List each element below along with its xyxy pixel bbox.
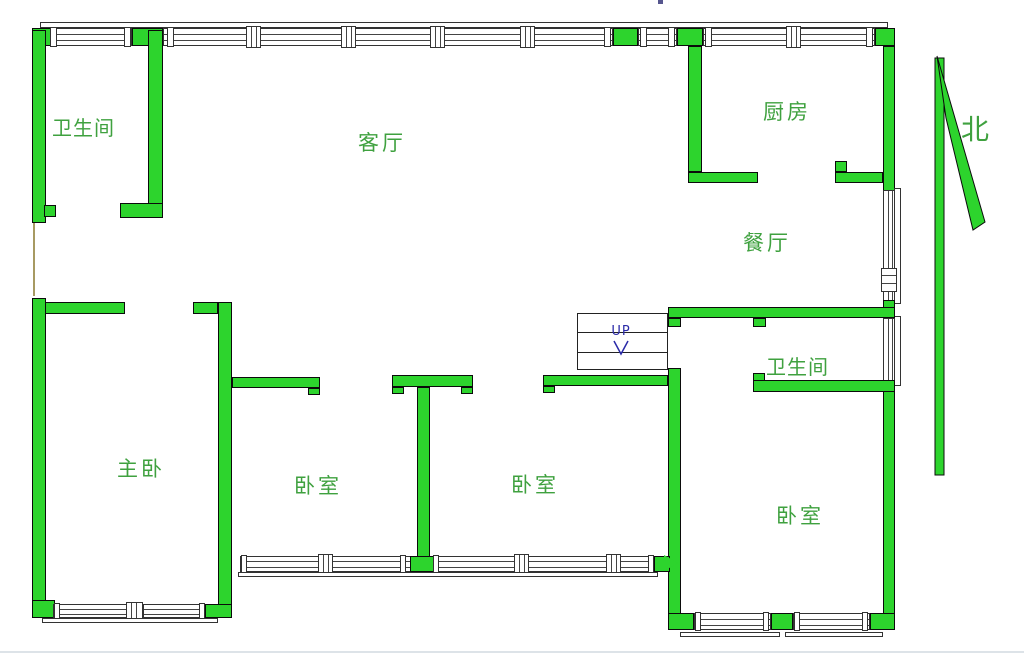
wall	[543, 375, 668, 386]
window-frame-tick	[50, 27, 57, 47]
wall-door-jamb	[668, 318, 681, 327]
window-frame-tick	[668, 27, 675, 47]
window-frame-tick	[124, 27, 131, 47]
window-frame-tick	[763, 612, 769, 631]
wall	[677, 28, 703, 46]
window	[793, 613, 870, 630]
window	[432, 556, 658, 572]
wall	[688, 172, 758, 183]
window-mullion	[786, 26, 801, 48]
window-frame-tick	[54, 603, 60, 619]
wall-door-jamb	[392, 387, 404, 394]
wall	[32, 30, 46, 223]
window-frame-tick	[648, 555, 654, 573]
window-frame-tick	[199, 603, 205, 619]
wall	[883, 382, 895, 615]
wall-door-jamb	[44, 205, 56, 217]
room-label-bedroom-2: 卧室	[511, 469, 559, 499]
wall-door-jamb	[461, 387, 473, 394]
window-frame-tick	[167, 27, 174, 47]
sill-line	[238, 572, 658, 577]
wall-door-jamb	[835, 161, 847, 172]
page-divider-line	[0, 651, 1024, 653]
window	[143, 604, 207, 618]
room-label-kitchen: 厨房	[763, 96, 811, 126]
window	[50, 28, 132, 46]
room-label-dining-room: 餐厅	[743, 227, 791, 257]
window-frame-tick	[695, 612, 701, 631]
wall	[120, 203, 163, 218]
window	[163, 28, 613, 46]
wall	[668, 307, 895, 318]
window-mullion	[514, 554, 529, 574]
wall	[193, 302, 218, 314]
stairs-up-arrow-icon	[612, 340, 630, 356]
wall	[771, 613, 793, 630]
wall	[870, 613, 895, 630]
wall-end-taper	[664, 555, 678, 571]
window-mullion	[246, 26, 261, 48]
wall	[668, 613, 694, 630]
wall	[753, 380, 895, 392]
sill-line	[42, 618, 218, 623]
north-label: 北	[961, 108, 989, 148]
screen-artifact	[658, 0, 663, 4]
sill-line	[785, 632, 883, 637]
window-mullion	[318, 554, 333, 574]
room-label-bedroom-3: 卧室	[776, 500, 824, 530]
wall	[148, 30, 163, 205]
window	[53, 604, 128, 618]
wall	[410, 556, 434, 572]
wall	[835, 172, 883, 183]
window-frame-tick	[604, 27, 611, 47]
wall	[875, 28, 895, 46]
wall	[417, 387, 430, 558]
room-label-bedroom-1: 卧室	[294, 470, 342, 500]
wall	[32, 600, 55, 618]
window-mullion	[606, 554, 621, 574]
window-mullion	[881, 268, 897, 292]
wall	[45, 302, 125, 314]
room-label-bathroom-right: 卫生间	[766, 351, 829, 380]
window-frame-tick	[433, 555, 439, 573]
window-mullion	[341, 26, 356, 48]
window	[883, 318, 895, 384]
window-frame-tick	[400, 555, 406, 573]
sill-line	[680, 632, 780, 637]
window-mullion	[430, 26, 445, 48]
window-frame-tick	[705, 27, 712, 47]
wall	[688, 46, 702, 172]
wall	[218, 302, 232, 618]
window-frame-tick	[640, 27, 647, 47]
window-frame-tick	[241, 555, 247, 573]
wall	[205, 604, 232, 618]
wall	[613, 28, 638, 46]
wall	[232, 377, 320, 388]
wall	[883, 46, 895, 194]
room-label-master-bedroom: 主卧	[117, 453, 165, 483]
window-sill	[894, 316, 901, 386]
floor-plan: UP 北 卫生间 客厅 厨房 餐厅 卫生间 主卧 卧室 卧室 卧室	[0, 0, 1024, 658]
wall-door-jamb	[543, 386, 555, 393]
window-frame-tick	[794, 612, 800, 631]
window-mullion	[520, 26, 535, 48]
window	[694, 613, 771, 630]
wall-door-jamb	[308, 388, 320, 395]
room-label-bathroom-top-left: 卫生间	[52, 112, 115, 141]
room-label-living-room: 客厅	[358, 127, 406, 157]
window-frame-tick	[862, 612, 868, 631]
stairs-up-label: UP	[590, 324, 652, 339]
wall	[32, 298, 46, 618]
threshold-line	[33, 223, 35, 296]
wall	[668, 368, 681, 618]
wall	[392, 375, 473, 387]
wall-door-jamb	[753, 318, 766, 327]
window-frame-tick	[866, 27, 873, 47]
